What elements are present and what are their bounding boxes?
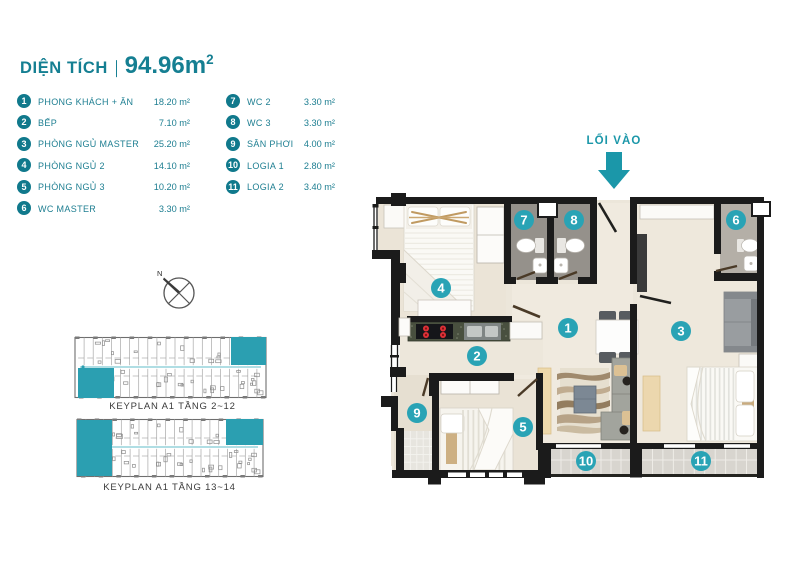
svg-text:10: 10: [579, 454, 593, 469]
svg-text:2: 2: [473, 349, 480, 364]
svg-text:1: 1: [564, 321, 571, 336]
svg-text:9: 9: [413, 406, 420, 421]
svg-text:8: 8: [570, 213, 577, 228]
svg-text:7: 7: [520, 213, 527, 228]
svg-text:6: 6: [732, 213, 739, 228]
svg-text:5: 5: [519, 420, 526, 435]
svg-text:4: 4: [437, 281, 445, 296]
svg-text:11: 11: [694, 454, 708, 469]
svg-text:3: 3: [677, 324, 684, 339]
